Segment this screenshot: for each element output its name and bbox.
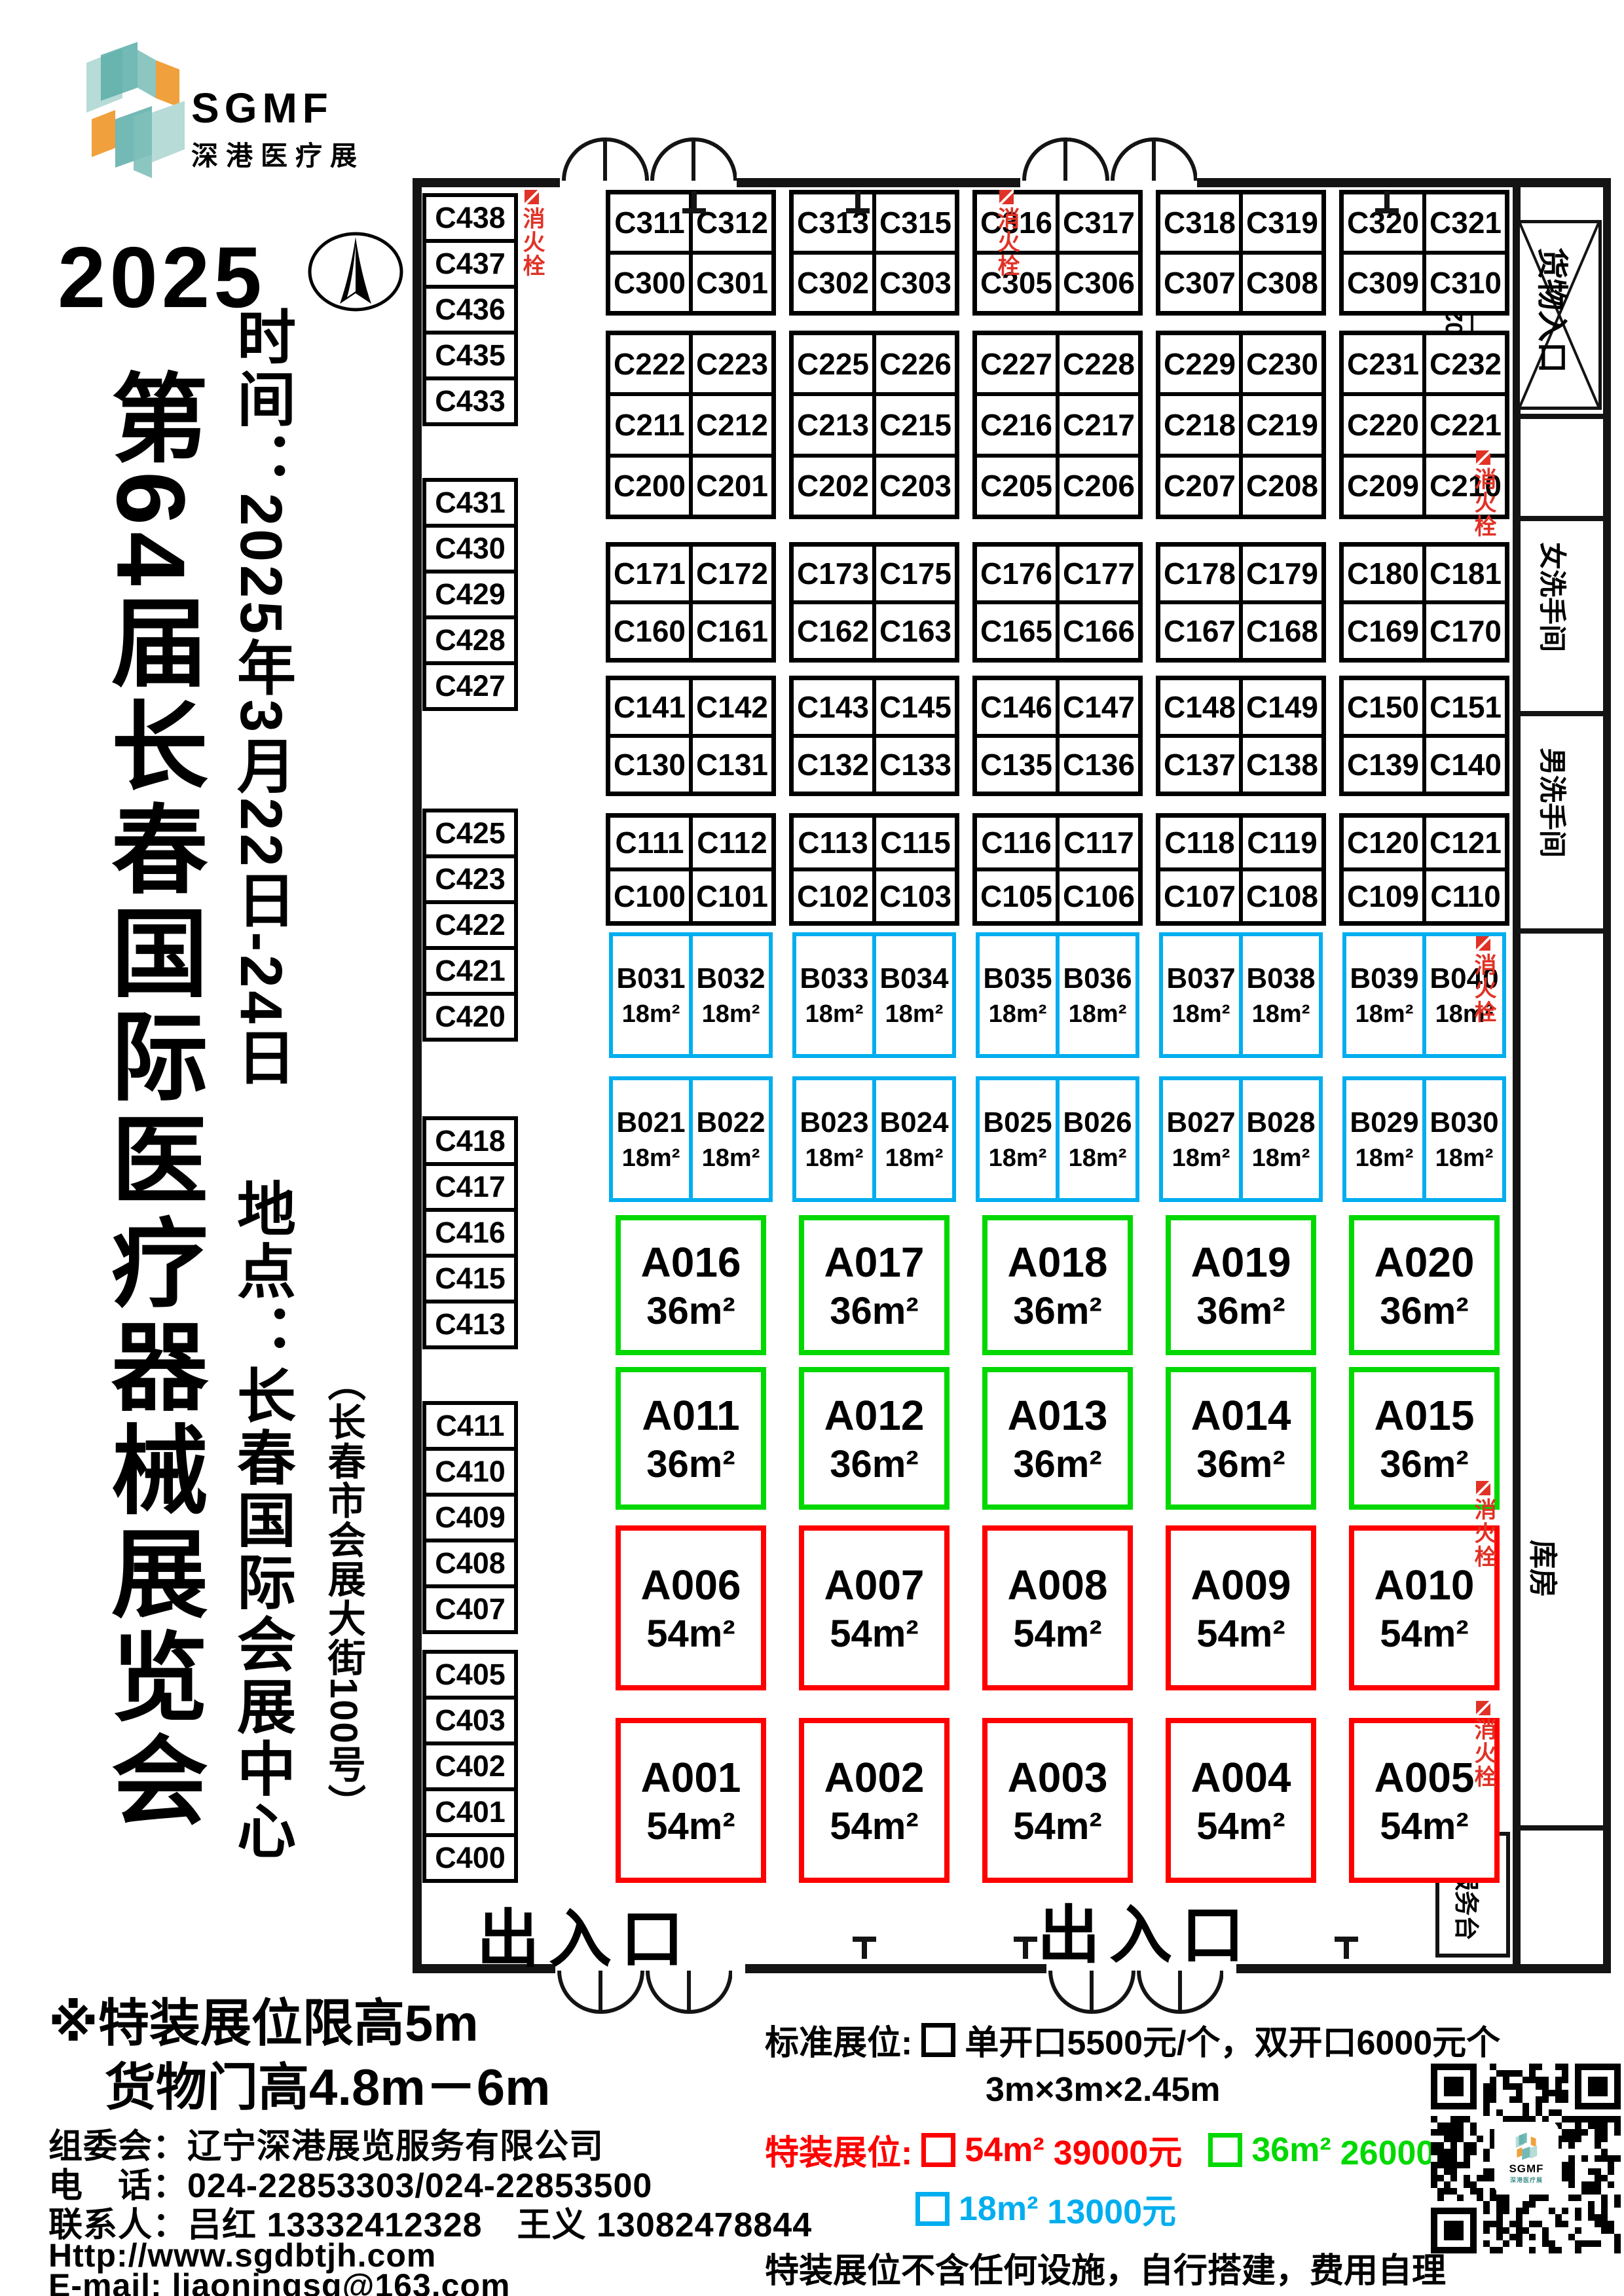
- booth-id: B039: [1350, 962, 1418, 995]
- booth-C145: C145: [876, 680, 955, 734]
- booth-C151: C151: [1426, 680, 1505, 734]
- booth-id: B036: [1063, 962, 1132, 995]
- booth-area: 18m²: [1069, 1000, 1127, 1029]
- booth-C115: C115: [876, 818, 955, 867]
- booth-C171: C171: [610, 547, 689, 600]
- pricing-standard-line: 标准展位: 单开口5500元/个，双开口6000元个: [765, 2015, 1500, 2064]
- booth-block: C150C151C139C140: [1339, 676, 1509, 796]
- booth-area: 54m²: [646, 1612, 735, 1656]
- booth-C108: C108: [1243, 871, 1321, 921]
- booth-area: 18m²: [622, 1144, 680, 1173]
- booth-C206: C206: [1060, 458, 1138, 515]
- booth-block: C148C149C137C138: [1156, 676, 1326, 796]
- booth-C100: C100: [610, 871, 689, 921]
- fire-hydrant-label: 消火栓: [995, 207, 1018, 278]
- booth-C219: C219: [1243, 396, 1321, 453]
- booth-C111: C111: [610, 818, 689, 867]
- column-mark-stem: [862, 1942, 867, 1959]
- booth-block: B03118m²B03218m²: [609, 932, 773, 1058]
- booth-C161: C161: [693, 604, 771, 658]
- booth-A006: A00654m²: [616, 1525, 766, 1690]
- booth-C132: C132: [794, 738, 872, 792]
- booth-A016: A01636m²: [616, 1215, 766, 1355]
- booth-area: 18m²: [622, 1000, 680, 1029]
- special-18-price: 13000元: [1047, 2184, 1176, 2233]
- booth-block: C222C223C211C212C200C201: [606, 331, 776, 519]
- booth-C179: C179: [1243, 547, 1321, 600]
- booth-block: C225C226C213C215C202C203: [789, 331, 959, 519]
- fire-hydrant-icon: [1476, 450, 1490, 465]
- booth-C215: C215: [876, 396, 955, 453]
- booth-area: 18m²: [1435, 1144, 1494, 1173]
- booth-C435: C435: [422, 331, 518, 380]
- booth-B023: B02318m²: [796, 1080, 872, 1198]
- special-18-size: 18m²: [959, 2189, 1038, 2229]
- booth-C203: C203: [876, 458, 955, 515]
- booth-C118: C118: [1160, 818, 1239, 867]
- booth-A012: A01236m²: [799, 1367, 950, 1510]
- booth-C436: C436: [422, 285, 518, 335]
- booth-id: B030: [1430, 1106, 1498, 1139]
- booth-C228: C228: [1060, 335, 1138, 392]
- booth-C208: C208: [1243, 458, 1321, 515]
- pricing-standard-price: 单开口5500元/个，双开口6000元个: [965, 2015, 1500, 2064]
- booth-A002: A00254m²: [799, 1718, 950, 1883]
- pricing-special-label: 特装展位:: [765, 2125, 912, 2174]
- booth-id: B025: [983, 1106, 1052, 1139]
- booth-C415: C415: [422, 1254, 518, 1303]
- booth-id: A001: [641, 1753, 741, 1802]
- booth-B034: B03418m²: [876, 936, 952, 1054]
- booth-id: B033: [800, 962, 868, 995]
- note-cargo-door: 货物门高4.8m－6m: [105, 2047, 551, 2120]
- booth-C167: C167: [1160, 604, 1239, 658]
- booth-C232: C232: [1426, 335, 1505, 392]
- booth-C107: C107: [1160, 871, 1239, 921]
- booth-B032: B03218m²: [693, 936, 769, 1054]
- fire-hydrant-label: 消火栓: [1472, 467, 1494, 538]
- booth-C136: C136: [1060, 738, 1138, 792]
- booth-C168: C168: [1243, 604, 1321, 658]
- booth-area: 36m²: [1380, 1442, 1468, 1486]
- pricing-standard-size: 3m×3m×2.45m: [986, 2070, 1221, 2109]
- booth-A001: A00154m²: [616, 1718, 766, 1883]
- booth-area: 36m²: [646, 1442, 735, 1486]
- booth-C411: C411: [422, 1401, 518, 1451]
- booth-A003: A00354m²: [982, 1718, 1133, 1883]
- pricing-special-line: 特装展位: 54m² 39000元 36m² 26000元: [765, 2125, 1469, 2174]
- booth-id: A010: [1375, 1561, 1475, 1609]
- booth-area: 54m²: [646, 1804, 735, 1848]
- booth-block: C146C147C135C136: [972, 676, 1143, 796]
- booth-A014: A01436m²: [1166, 1367, 1316, 1510]
- booth-C106: C106: [1060, 871, 1138, 921]
- booth-C160: C160: [610, 604, 689, 658]
- fire-hydrant-icon: [999, 190, 1014, 204]
- fire-hydrant-marker: 消火栓: [995, 190, 1018, 278]
- booth-id: A009: [1191, 1561, 1291, 1609]
- booth-id: A004: [1191, 1753, 1291, 1802]
- qr-center-badge: SGMF 深港医疗展: [1496, 2124, 1557, 2192]
- booth-B021: B02118m²: [613, 1080, 689, 1198]
- booth-id: B027: [1166, 1106, 1235, 1139]
- booth-C201: C201: [693, 458, 771, 515]
- booth-block: C173C175C162C163: [789, 542, 959, 663]
- booth-C319: C319: [1243, 194, 1321, 251]
- booth-A020: A02036m²: [1349, 1215, 1500, 1355]
- column-mark-cap: [682, 208, 706, 213]
- booth-B035: B03518m²: [980, 936, 1056, 1054]
- booth-B026: B02618m²: [1060, 1080, 1135, 1198]
- booth-C202: C202: [794, 458, 872, 515]
- booth-area: 54m²: [1013, 1612, 1101, 1656]
- booth-C205: C205: [977, 458, 1056, 515]
- booth-C221: C221: [1426, 396, 1505, 453]
- booth-B022: B02218m²: [693, 1080, 769, 1198]
- booth-area: 18m²: [1069, 1144, 1127, 1173]
- booth-C300: C300: [610, 255, 689, 311]
- booth-area: 18m²: [805, 1000, 864, 1029]
- booth-block: C313C315C302C303: [789, 190, 959, 316]
- booth-area: 18m²: [885, 1144, 944, 1173]
- booth-area: 18m²: [1172, 1144, 1230, 1173]
- booth-C103: C103: [876, 871, 955, 921]
- booth-area: 36m²: [830, 1289, 918, 1333]
- pricing-standard-size-text: 3m×3m×2.45m: [986, 2070, 1221, 2109]
- floorplan: 出入口 出入口 货物入口 5025 女洗手间 男洗手间 库房 总服务台 C438…: [0, 0, 1624, 2296]
- booth-C140: C140: [1426, 738, 1505, 792]
- booth-C209: C209: [1344, 458, 1422, 515]
- booth-C400: C400: [422, 1833, 518, 1883]
- booth-C418: C418: [422, 1116, 518, 1166]
- booth-C102: C102: [794, 871, 872, 921]
- column-mark: [846, 191, 870, 213]
- booth-C301: C301: [693, 255, 771, 311]
- booth-B024: B02418m²: [876, 1080, 952, 1198]
- booth-id: A013: [1008, 1391, 1108, 1440]
- booth-C178: C178: [1160, 547, 1239, 600]
- booth-C116: C116: [977, 818, 1056, 867]
- booth-id: B037: [1166, 962, 1235, 995]
- booth-id: A019: [1191, 1238, 1291, 1286]
- booth-C113: C113: [794, 818, 872, 867]
- booth-block: C171C172C160C161: [606, 542, 776, 663]
- booth-C176: C176: [977, 547, 1056, 600]
- booth-block: B02918m²B03018m²: [1342, 1076, 1506, 1202]
- booth-C110: C110: [1426, 871, 1505, 921]
- booth-C231: C231: [1344, 335, 1422, 392]
- booth-C310: C310: [1426, 255, 1505, 311]
- booth-area: 54m²: [830, 1612, 918, 1656]
- booth-C150: C150: [1344, 680, 1422, 734]
- booth-C213: C213: [794, 396, 872, 453]
- booth-C149: C149: [1243, 680, 1321, 734]
- pricing-note-text: 特装展位不含任何设施，自行搭建，费用自理: [765, 2243, 1446, 2292]
- booth-C308: C308: [1243, 255, 1321, 311]
- booth-B031: B03118m²: [613, 936, 689, 1054]
- fire-hydrant-icon: [1476, 936, 1490, 951]
- booth-block: C116C117C105C106: [972, 813, 1143, 926]
- booth-C306: C306: [1060, 255, 1138, 311]
- booth-area: 54m²: [1380, 1804, 1468, 1848]
- booth-C146: C146: [977, 680, 1056, 734]
- booth-C135: C135: [977, 738, 1056, 792]
- booth-block: B02518m²B02618m²: [976, 1076, 1139, 1202]
- booth-C170: C170: [1426, 604, 1505, 658]
- booth-C433: C433: [422, 376, 518, 426]
- column-mark-cap: [1014, 1937, 1037, 1942]
- booth-A007: A00754m²: [799, 1525, 950, 1690]
- booth-C226: C226: [876, 335, 955, 392]
- fire-hydrant-icon: [1476, 1701, 1490, 1715]
- booth-A018: A01836m²: [982, 1215, 1133, 1355]
- booth-B027: B02718m²: [1163, 1080, 1239, 1198]
- booth-C421: C421: [422, 946, 518, 996]
- booth-layer: C438C437C436C435C433C431C430C429C428C427…: [0, 0, 1624, 2296]
- booth-C423: C423: [422, 854, 518, 904]
- booth-block: C113C115C102C103: [789, 813, 959, 926]
- booth-C131: C131: [693, 738, 771, 792]
- booth-C117: C117: [1060, 818, 1138, 867]
- column-mark-cap: [853, 1937, 876, 1942]
- booth-C121: C121: [1426, 818, 1505, 867]
- booth-C148: C148: [1160, 680, 1239, 734]
- column-mark-cap: [1335, 1937, 1358, 1942]
- booth-C302: C302: [794, 255, 872, 311]
- booth-C138: C138: [1243, 738, 1321, 792]
- booth-block: C118C119C107C108: [1156, 813, 1326, 926]
- booth-id: B038: [1246, 962, 1315, 995]
- fire-hydrant-label: 消火栓: [1472, 1498, 1494, 1569]
- booth-area: 18m²: [702, 1144, 760, 1173]
- booth-C227: C227: [977, 335, 1056, 392]
- booth-C417: C417: [422, 1162, 518, 1212]
- booth-B025: B02518m²: [980, 1080, 1056, 1198]
- booth-B038: B03818m²: [1243, 936, 1319, 1054]
- booth-C165: C165: [977, 604, 1056, 658]
- booth-C229: C229: [1160, 335, 1239, 392]
- booth-id: B032: [696, 962, 765, 995]
- booth-C422: C422: [422, 900, 518, 950]
- fire-hydrant-marker: 消火栓: [1472, 1481, 1494, 1569]
- booth-C169: C169: [1344, 604, 1422, 658]
- booth-C317: C317: [1060, 194, 1138, 251]
- booth-area: 18m²: [1356, 1000, 1414, 1029]
- booth-block: C120C121C109C110: [1339, 813, 1509, 926]
- booth-id: A017: [824, 1238, 925, 1286]
- poster-page: SGMF 深港医疗展 2025 第64届长春国际医疗器械展览会 时间：2025年…: [0, 0, 1624, 2296]
- booth-block: B03518m²B03618m²: [976, 932, 1139, 1058]
- booth-C309: C309: [1344, 255, 1422, 311]
- booth-C101: C101: [693, 871, 771, 921]
- column-mark-stem: [855, 191, 860, 208]
- booth-C416: C416: [422, 1208, 518, 1258]
- booth-area: 36m²: [1380, 1289, 1468, 1333]
- booth-id: A011: [642, 1391, 739, 1440]
- column-mark: [682, 191, 706, 213]
- booth-C225: C225: [794, 335, 872, 392]
- booth-id: A015: [1375, 1391, 1475, 1440]
- booth-C402: C402: [422, 1741, 518, 1791]
- booth-C303: C303: [876, 255, 955, 311]
- booth-area: 36m²: [1013, 1289, 1101, 1333]
- booth-area: 18m²: [1252, 1144, 1310, 1173]
- booth-C315: C315: [876, 194, 955, 251]
- booth-C420: C420: [422, 992, 518, 1042]
- booth-id: A016: [641, 1238, 741, 1286]
- booth-C311: C311: [610, 194, 689, 251]
- booth-B030: B03018m²: [1426, 1080, 1502, 1198]
- booth-C431: C431: [422, 478, 518, 528]
- booth-A004: A00454m²: [1166, 1718, 1316, 1883]
- booth-area: 54m²: [830, 1804, 918, 1848]
- booth-id: A014: [1191, 1391, 1291, 1440]
- fire-hydrant-marker: 消火栓: [1472, 450, 1494, 538]
- booth-B039: B03918m²: [1346, 936, 1422, 1054]
- booth-block: B02118m²B02218m²: [609, 1076, 773, 1202]
- contact-email: E-mail: liaoningsg@163.com: [48, 2267, 510, 2296]
- booth-id: B029: [1350, 1106, 1418, 1139]
- booth-C162: C162: [794, 604, 872, 658]
- booth-A009: A00954m²: [1166, 1525, 1316, 1690]
- booth-C175: C175: [876, 547, 955, 600]
- column-mark-stem: [1344, 1942, 1349, 1959]
- column-mark: [1014, 1937, 1037, 1959]
- booth-A019: A01936m²: [1166, 1215, 1316, 1355]
- booth-area: 36m²: [1196, 1289, 1285, 1333]
- booth-C405: C405: [422, 1650, 518, 1700]
- column-mark-stem: [1023, 1942, 1028, 1959]
- special-36-swatch: [1208, 2133, 1242, 2167]
- fire-hydrant-label: 消火栓: [521, 207, 543, 278]
- fire-hydrant-label: 消火栓: [1472, 953, 1494, 1024]
- booth-area: 18m²: [1172, 1000, 1230, 1029]
- booth-C407: C407: [422, 1584, 518, 1634]
- booth-B037: B03718m²: [1163, 936, 1239, 1054]
- booth-block: C111C112C100C101: [606, 813, 776, 926]
- booth-id: B024: [879, 1106, 948, 1139]
- booth-C109: C109: [1344, 871, 1422, 921]
- fire-hydrant-marker: 消火栓: [1472, 1701, 1494, 1789]
- fire-hydrant-icon: [525, 190, 539, 204]
- booth-C408: C408: [422, 1539, 518, 1588]
- booth-C430: C430: [422, 524, 518, 574]
- booth-C307: C307: [1160, 255, 1239, 311]
- booth-C181: C181: [1426, 547, 1505, 600]
- booth-B028: B02818m²: [1243, 1080, 1319, 1198]
- booth-block: B02718m²B02818m²: [1159, 1076, 1323, 1202]
- booth-id: A006: [641, 1561, 741, 1609]
- booth-id: B028: [1246, 1106, 1315, 1139]
- booth-C217: C217: [1060, 396, 1138, 453]
- booth-C120: C120: [1344, 818, 1422, 867]
- booth-B036: B03618m²: [1060, 936, 1135, 1054]
- booth-B029: B02918m²: [1346, 1080, 1422, 1198]
- booth-C230: C230: [1243, 335, 1321, 392]
- booth-id: B022: [696, 1106, 765, 1139]
- booth-block: C178C179C167C168: [1156, 542, 1326, 663]
- booth-area: 18m²: [702, 1000, 760, 1029]
- booth-id: A002: [824, 1753, 925, 1802]
- booth-C401: C401: [422, 1787, 518, 1837]
- booth-A013: A01336m²: [982, 1367, 1133, 1510]
- booth-C318: C318: [1160, 194, 1239, 251]
- booth-C207: C207: [1160, 458, 1239, 515]
- booth-C410: C410: [422, 1447, 518, 1497]
- booth-C139: C139: [1344, 738, 1422, 792]
- booth-id: A020: [1375, 1238, 1475, 1286]
- column-mark: [853, 1937, 876, 1959]
- booth-area: 18m²: [989, 1144, 1047, 1173]
- booth-area: 54m²: [1013, 1804, 1101, 1848]
- booth-C429: C429: [422, 570, 518, 619]
- booth-C112: C112: [693, 818, 771, 867]
- booth-C220: C220: [1344, 396, 1422, 453]
- booth-A011: A01136m²: [616, 1367, 766, 1510]
- booth-id: A012: [824, 1391, 925, 1440]
- booth-block: B02318m²B02418m²: [792, 1076, 956, 1202]
- special-54-size: 54m²: [965, 2130, 1044, 2170]
- booth-C413: C413: [422, 1300, 518, 1349]
- booth-C427: C427: [422, 661, 518, 711]
- booth-C437: C437: [422, 239, 518, 289]
- booth-C147: C147: [1060, 680, 1138, 734]
- booth-area: 36m²: [830, 1442, 918, 1486]
- booth-C173: C173: [794, 547, 872, 600]
- booth-C105: C105: [977, 871, 1056, 921]
- booth-area: 54m²: [1196, 1804, 1285, 1848]
- booth-C321: C321: [1426, 194, 1505, 251]
- booth-area: 18m²: [1252, 1000, 1310, 1029]
- booth-C211: C211: [610, 396, 689, 453]
- booth-C142: C142: [693, 680, 771, 734]
- booth-area: 36m²: [646, 1289, 735, 1333]
- booth-id: A008: [1008, 1561, 1108, 1609]
- column-mark-cap: [1375, 208, 1399, 213]
- booth-area: 54m²: [1380, 1612, 1468, 1656]
- booth-C172: C172: [693, 547, 771, 600]
- booth-C222: C222: [610, 335, 689, 392]
- fire-hydrant-label: 消火栓: [1472, 1718, 1494, 1789]
- booth-C409: C409: [422, 1493, 518, 1542]
- booth-block: B03318m²B03418m²: [792, 932, 956, 1058]
- booth-C166: C166: [1060, 604, 1138, 658]
- booth-C137: C137: [1160, 738, 1239, 792]
- booth-C130: C130: [610, 738, 689, 792]
- booth-id: B035: [983, 962, 1052, 995]
- booth-C403: C403: [422, 1696, 518, 1745]
- booth-C200: C200: [610, 458, 689, 515]
- booth-A008: A00854m²: [982, 1525, 1133, 1690]
- booth-id: A003: [1008, 1753, 1108, 1802]
- booth-C177: C177: [1060, 547, 1138, 600]
- booth-C216: C216: [977, 396, 1056, 453]
- booth-block: C143C145C132C133: [789, 676, 959, 796]
- booth-area: 18m²: [1356, 1144, 1414, 1173]
- booth-C141: C141: [610, 680, 689, 734]
- booth-C212: C212: [693, 396, 771, 453]
- note-height-limit: ※特装展位限高5m: [48, 1982, 479, 2056]
- booth-id: B023: [800, 1106, 868, 1139]
- column-mark-cap: [846, 208, 870, 213]
- booth-C119: C119: [1243, 818, 1321, 867]
- booth-id: A018: [1008, 1238, 1108, 1286]
- qr-code: SGMF 深港医疗展: [1431, 2064, 1621, 2253]
- column-mark-stem: [1384, 191, 1390, 208]
- booth-area: 18m²: [805, 1144, 864, 1173]
- booth-C180: C180: [1344, 547, 1422, 600]
- booth-C425: C425: [422, 809, 518, 858]
